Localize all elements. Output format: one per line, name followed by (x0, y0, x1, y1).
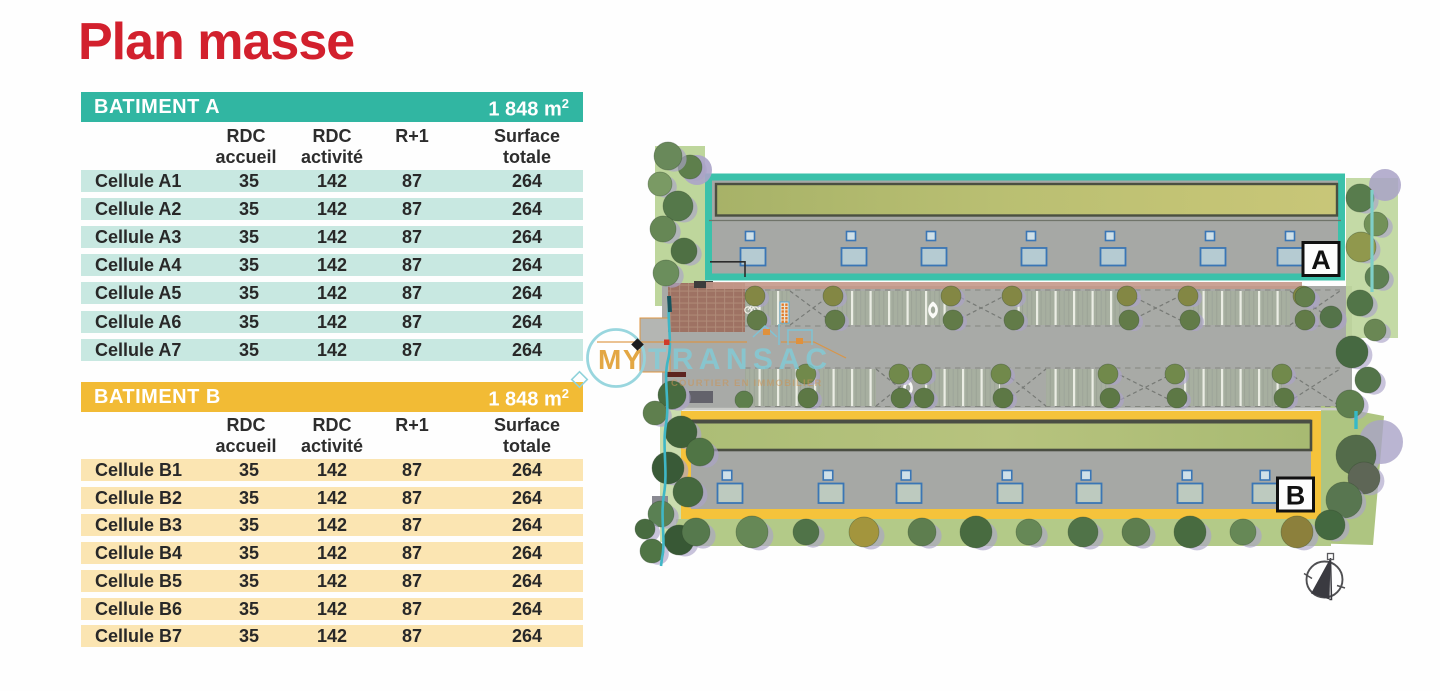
svg-text:COURTIER EN IMMOBILIER: COURTIER EN IMMOBILIER (671, 378, 822, 389)
svg-text:A: A (1311, 245, 1331, 275)
svg-text:TRANSAC: TRANSAC (648, 343, 832, 376)
svg-text:B: B (1286, 481, 1306, 511)
